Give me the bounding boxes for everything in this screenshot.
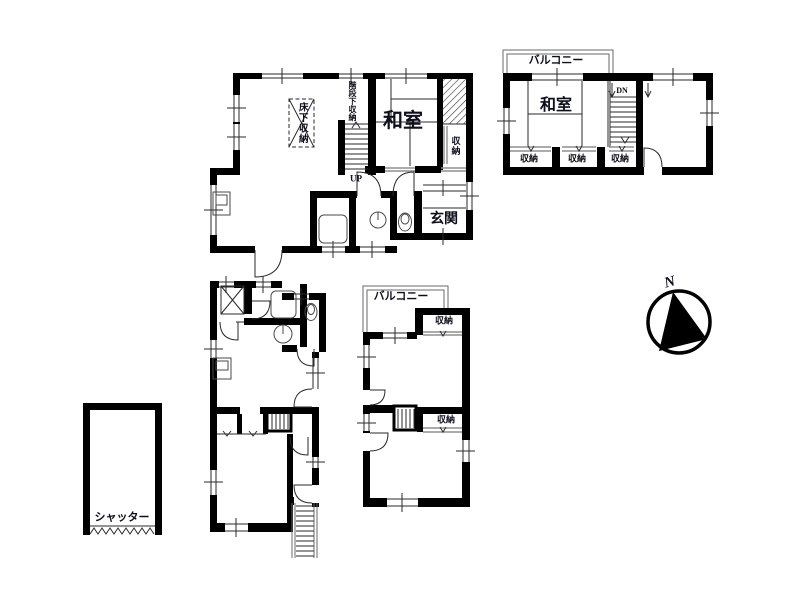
label-japanese-room-2f: 和室 [540,98,572,114]
sink-icon [370,212,386,228]
label-balcony-annex: バルコニー [374,292,429,303]
shutter-zigzag [90,528,154,534]
label-storage-2f-left: 収納 [520,155,538,164]
annex-floor-plan [357,286,475,512]
annex-door-arc-upper [370,390,385,405]
room-door-arc-2f [644,148,662,167]
label-storage-annex-lower: 収納 [437,416,455,425]
annex-stairs [394,406,416,430]
bath-door-arc [252,301,270,319]
label-floor-storage: 床下収納 [296,102,306,144]
north-arrow [648,291,710,353]
annex-door-arc-lower [370,433,388,451]
entry-door-arc [255,250,282,277]
hall-door-arc [294,389,312,407]
label-shutter: シャッター [95,513,150,524]
label-storage-2f-right: 収納 [611,155,629,164]
washing-machine-icon [221,286,244,314]
tatami-lines-2f [528,81,608,147]
label-entrance: 玄関 [430,213,458,227]
toilet-icon [399,213,412,231]
label-storage-2f-center: 収納 [568,155,586,164]
label-storage-annex-upper: 収納 [435,317,453,326]
toilet-door-arc-3f [297,349,314,366]
sink-icon-3f [274,325,292,343]
third-floor-plan [204,276,326,558]
floorplan-page: 床下収納 階段下収納 UP 和室 収納 玄関 バルコニー 和室 DN 収納 収納… [0,0,800,600]
label-japanese-room-1f: 和室 [383,111,423,131]
exterior-stairs [292,503,317,558]
label-balcony-2f: バルコニー [529,56,584,67]
wash-door-arc [220,322,238,340]
label-under-stair-storage: 階段下収納 [348,81,356,121]
bathtub-icon [319,215,347,243]
label-stairs-down: DN [616,87,628,95]
stairs-up [345,122,368,169]
first-floor-plan [204,68,479,277]
hatched-alcove [443,79,466,124]
label-storage-1f: 収納 [451,136,460,156]
label-stairs-up: UP [350,175,362,184]
exit-door-arc [294,485,312,503]
